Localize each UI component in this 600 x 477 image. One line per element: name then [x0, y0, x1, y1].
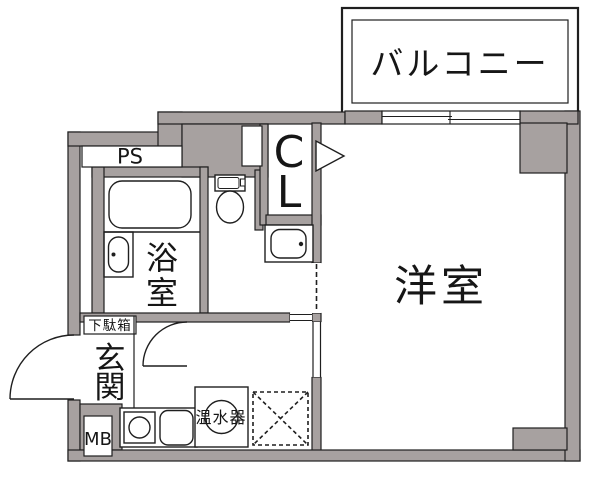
toilet	[215, 175, 245, 223]
shoe-box-label: 下駄箱	[88, 318, 132, 334]
entrance-door-arc	[10, 335, 74, 399]
wall-segment	[520, 111, 578, 124]
washing-machine-space	[253, 392, 308, 445]
sliding-door-dashed	[312, 263, 322, 313]
meter-box-label: MB	[84, 429, 112, 450]
wall-segment	[312, 377, 321, 451]
water-heater-label: 温水器	[195, 408, 246, 427]
wall-segment	[200, 167, 208, 313]
wall-column-top-right	[520, 123, 567, 173]
wall-column-bottom-right	[513, 428, 567, 450]
wall-segment	[312, 313, 321, 322]
bathroom-label-2: 室	[146, 274, 178, 312]
bath-sink-faucet-dot	[112, 253, 116, 257]
wall-segment	[92, 167, 104, 313]
closet-label-l: L	[277, 167, 302, 218]
toilet-tank-lid	[218, 178, 239, 189]
balcony: バルコニー	[342, 8, 578, 116]
washroom-opening	[290, 312, 312, 322]
duct-niche	[242, 126, 262, 166]
wall-segment	[92, 167, 208, 177]
closet-door-marker	[316, 141, 344, 171]
wall-segment	[68, 450, 580, 461]
wall-segment	[158, 112, 345, 124]
kitchen-burner	[129, 417, 150, 438]
wall-segment	[68, 132, 80, 335]
sliding-window	[382, 111, 520, 124]
western-room-label: 洋室	[394, 262, 488, 312]
entrance-label-2: 関	[95, 370, 126, 406]
bathroom-label-1: 浴	[146, 239, 178, 277]
hall-door-arc	[143, 322, 187, 366]
floorplan-svg: バルコニー	[0, 0, 600, 477]
balcony-label: バルコニー	[370, 44, 549, 83]
kitchen-sink	[160, 411, 193, 446]
kitchen	[120, 408, 197, 447]
bathtub	[109, 181, 191, 228]
floorplan-canvas: バルコニー	[0, 0, 600, 477]
room-opening	[312, 322, 322, 377]
toilet-bowl	[217, 191, 244, 223]
vanity-faucet-dot	[299, 242, 303, 246]
toilet-flush-handle	[241, 179, 246, 186]
wall-segment	[345, 111, 382, 124]
vanity	[265, 225, 313, 262]
pipe-space-label: PS	[117, 145, 143, 169]
